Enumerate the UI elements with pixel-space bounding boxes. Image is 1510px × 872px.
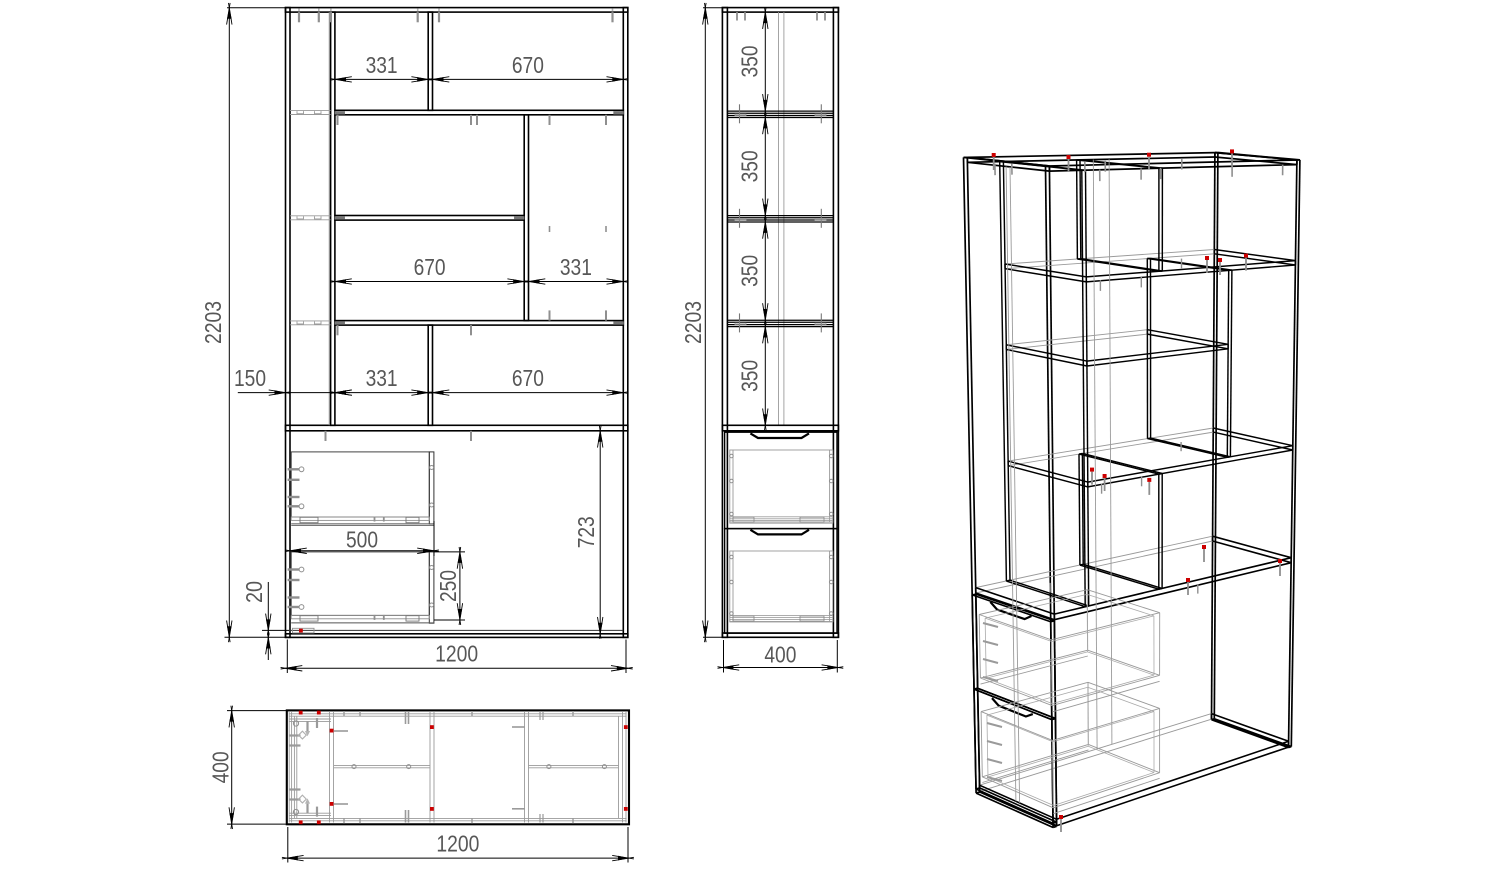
svg-text:2203: 2203: [680, 301, 706, 344]
svg-text:331: 331: [366, 365, 398, 391]
svg-text:400: 400: [764, 642, 796, 668]
svg-text:723: 723: [573, 516, 599, 548]
svg-text:350: 350: [737, 255, 763, 287]
svg-text:350: 350: [737, 46, 763, 78]
svg-text:20: 20: [241, 581, 267, 603]
svg-text:1200: 1200: [435, 641, 478, 667]
svg-text:670: 670: [512, 365, 544, 391]
svg-text:670: 670: [512, 52, 544, 78]
svg-text:150: 150: [234, 365, 266, 391]
svg-text:350: 350: [737, 150, 763, 182]
svg-text:1200: 1200: [436, 831, 479, 857]
svg-text:670: 670: [414, 254, 446, 280]
svg-text:250: 250: [435, 570, 461, 602]
svg-text:500: 500: [346, 527, 378, 553]
svg-text:2203: 2203: [200, 301, 226, 344]
svg-text:331: 331: [366, 52, 398, 78]
svg-text:400: 400: [208, 751, 234, 783]
svg-text:350: 350: [737, 360, 763, 392]
svg-text:331: 331: [560, 254, 592, 280]
